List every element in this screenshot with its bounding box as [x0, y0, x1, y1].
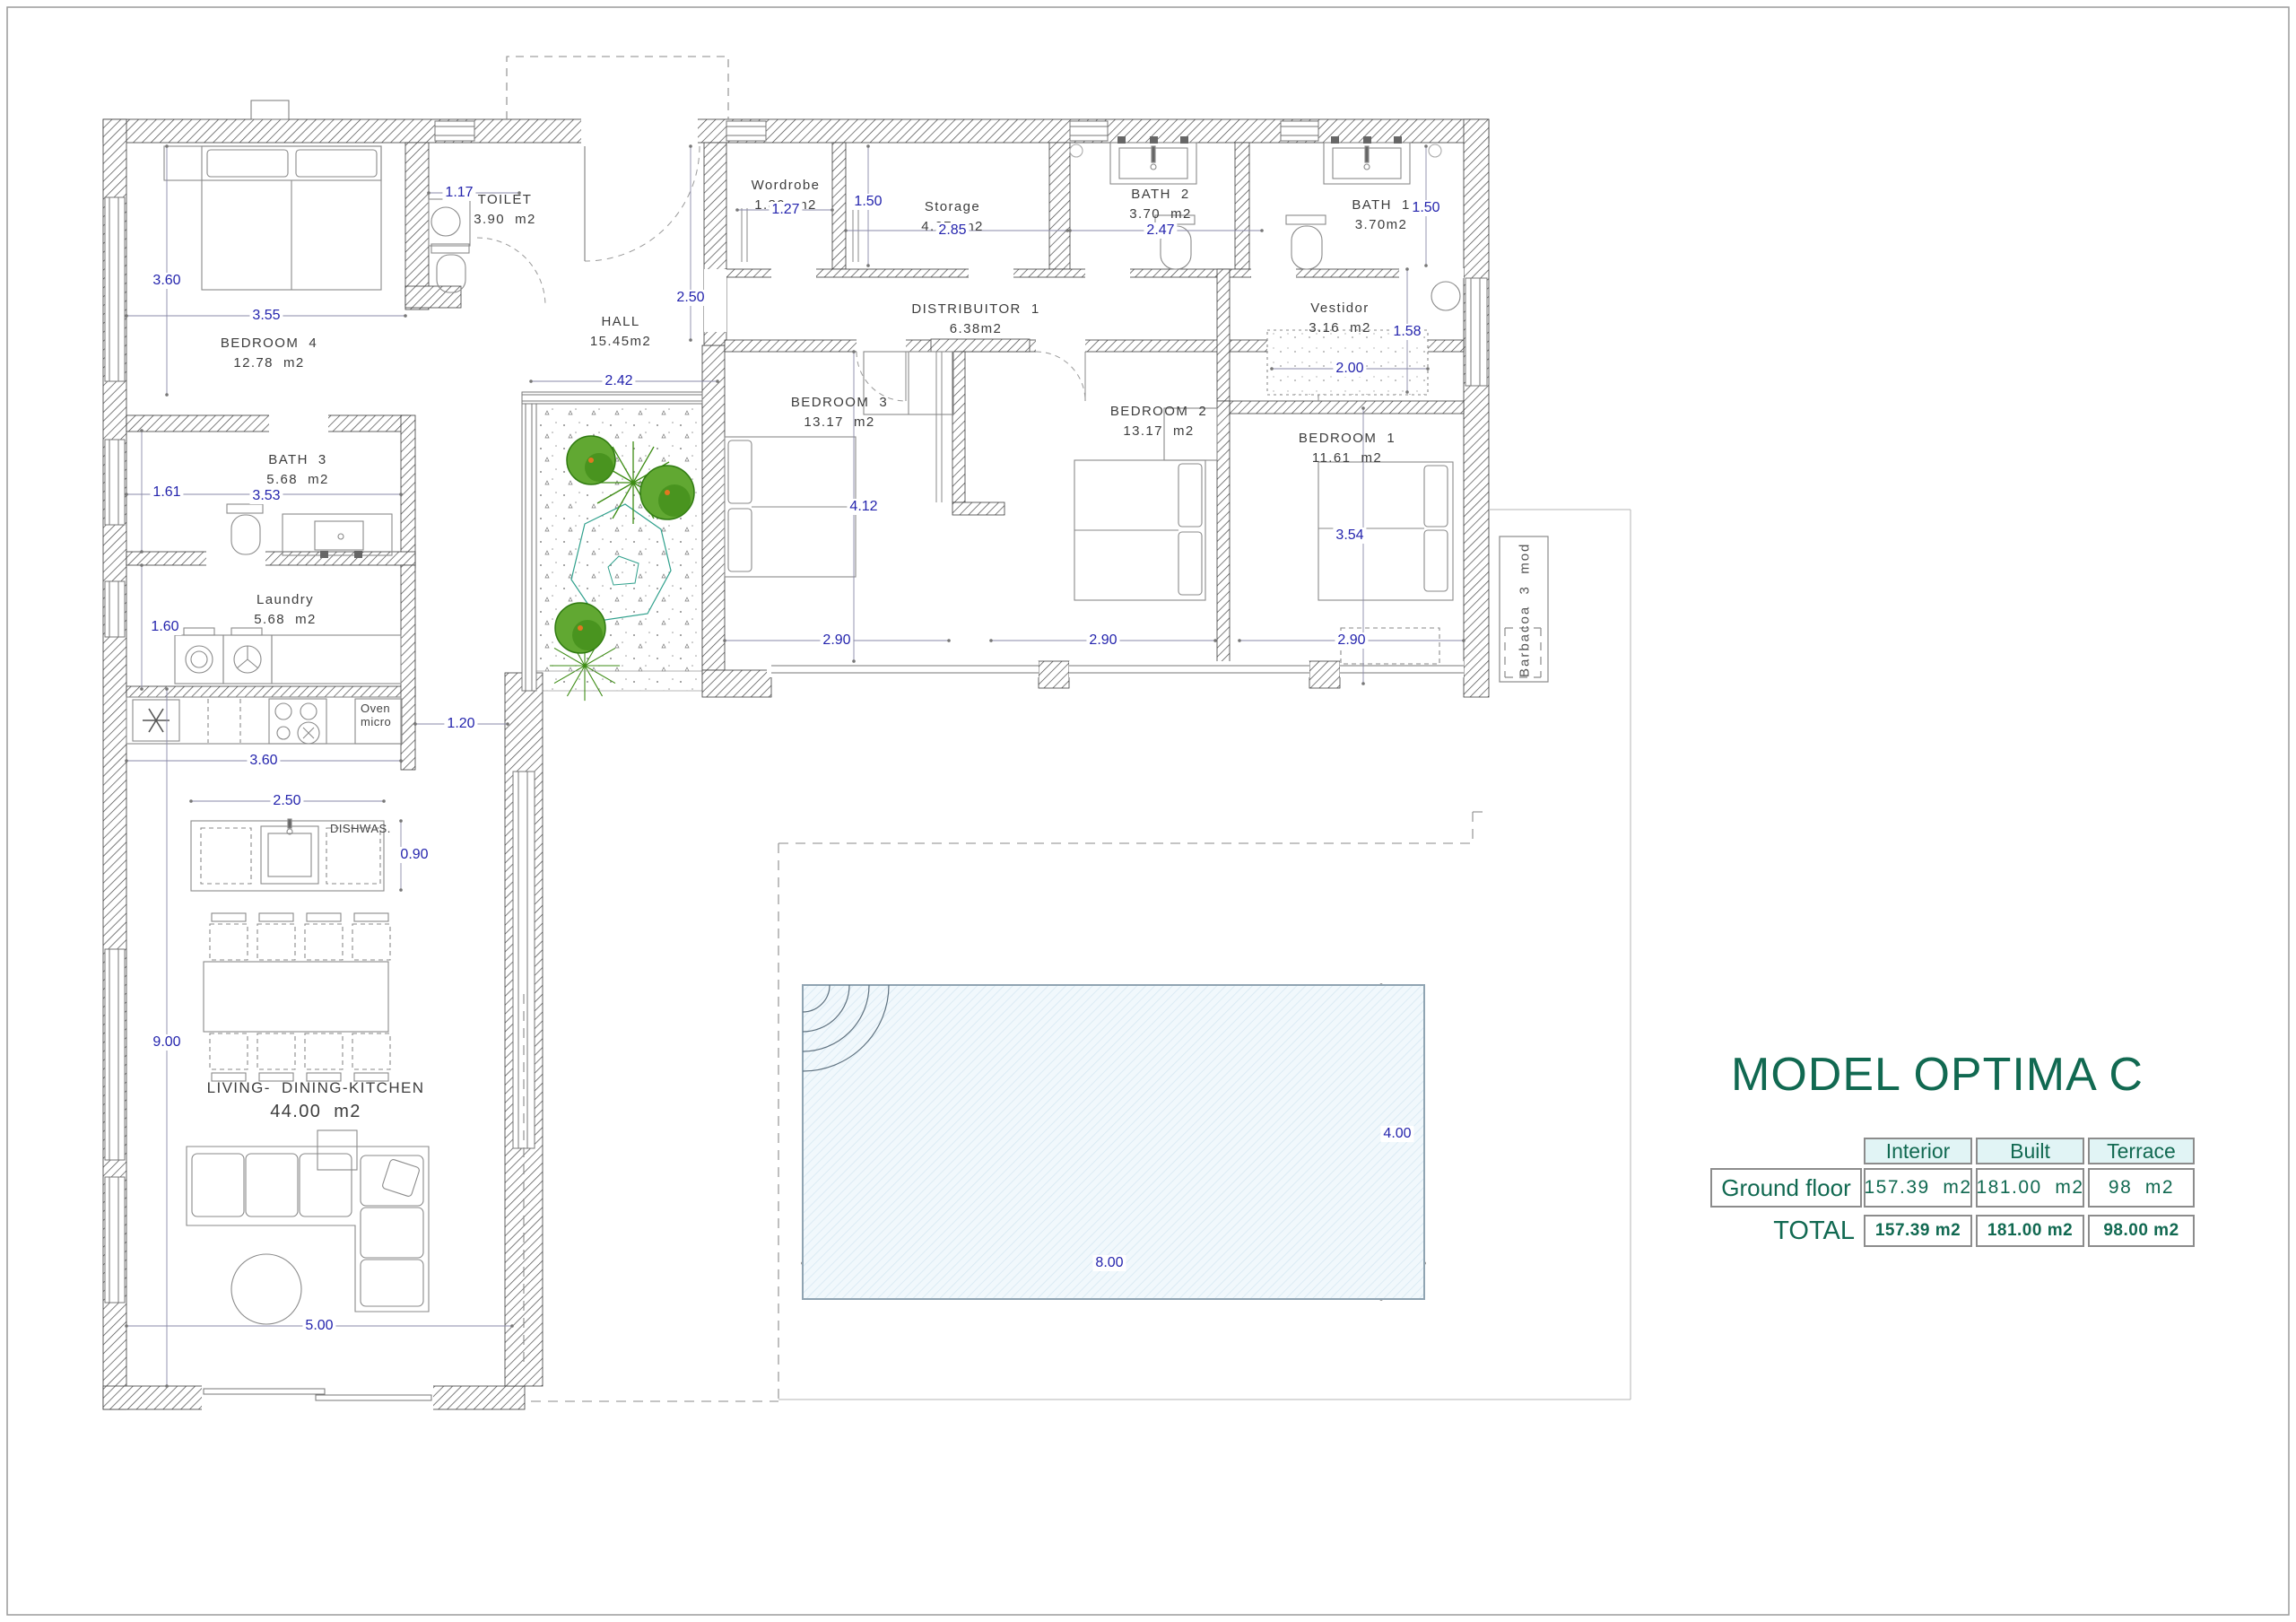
dimension-label: 2.90	[820, 632, 853, 649]
window-left-bedroom4	[105, 197, 125, 381]
dimension-label: 1.17	[442, 185, 475, 201]
distributor-doors	[936, 352, 942, 502]
dimension-label: 9.00	[150, 1034, 183, 1051]
dimension-label: 4.12	[847, 499, 880, 515]
room-label-bath-1: BATH 13.70m2	[1352, 196, 1410, 235]
wardrobe-door	[742, 208, 747, 262]
patio-garden	[536, 404, 702, 701]
vent-box-icon	[251, 100, 289, 119]
toilet-room-fixtures	[429, 199, 470, 292]
dimension-label: 2.50	[674, 290, 707, 306]
dimension-label: 2.85	[935, 222, 969, 239]
dimension-label: 1.20	[444, 716, 477, 732]
bed-double-icon	[164, 146, 381, 290]
window-top-wardrobe	[726, 121, 766, 141]
barbecue-label: Barbacoa 3 mod	[1503, 540, 1546, 680]
sofa-icon	[187, 1130, 429, 1312]
laundry-appliances	[175, 628, 401, 684]
dimension-label: 2.47	[1144, 222, 1177, 239]
bush-icon	[555, 603, 605, 653]
table-header-interior: Interior	[1864, 1138, 1972, 1164]
model-title: MODEL OPTIMA C	[1731, 1048, 2126, 1102]
ground-floor-interior-value: 157.39 m2	[1864, 1168, 1972, 1208]
round-table-icon	[231, 1254, 301, 1324]
bed-double-icon	[725, 352, 953, 577]
island-sink-icon	[261, 826, 318, 884]
table-header-terrace: Terrace	[2088, 1138, 2195, 1164]
wc-icon	[1291, 226, 1322, 269]
table-header-built: Built	[1976, 1138, 2084, 1164]
room-label-hall: HALL15.45m2	[590, 312, 651, 352]
washer-icon	[186, 646, 213, 673]
entrance-door-swing	[585, 146, 700, 261]
room-label-bedroom-3: BEDROOM 313.17 m2	[791, 393, 888, 432]
total-terrace-value: 98.00 m2	[2088, 1215, 2195, 1247]
table-row-label-ground-floor: Ground floor	[1710, 1168, 1862, 1208]
bush-icon	[567, 436, 615, 484]
window-top-toilet	[435, 121, 474, 141]
fridge-snowflake-icon	[143, 709, 170, 732]
porch-outline	[507, 57, 728, 119]
room-label-toilet: TOILET3.90 m2	[474, 190, 536, 230]
dimension-label: 3.60	[150, 273, 183, 289]
room-label-laundry: Laundry5.68 m2	[254, 590, 317, 630]
window-left-laundry	[105, 581, 125, 637]
window-left-bath3	[105, 440, 125, 525]
dining-table-icon	[204, 913, 390, 1081]
dimension-label: 3.53	[249, 488, 283, 504]
room-label-living-dining-kitchen: LIVING- DINING-KITCHEN44.00 m2	[207, 1077, 425, 1123]
dimension-label: 1.60	[148, 619, 181, 635]
dimension-label: 4.00	[1380, 1126, 1413, 1142]
side-table-icon	[317, 1130, 357, 1170]
dimension-label: 1.58	[1390, 324, 1423, 340]
dimension-label: 2.50	[270, 793, 303, 809]
room-label-bedroom-4: BEDROOM 412.78 m2	[221, 334, 317, 373]
room-label-bath-2: BATH 23.70 m2	[1129, 185, 1192, 224]
dimension-label: 3.54	[1333, 528, 1366, 544]
total-interior-value: 157.39 m2	[1864, 1215, 1972, 1247]
dimension-label: 2.90	[1335, 632, 1368, 649]
washbasin-icon	[1431, 282, 1460, 310]
floor-plan-drawing	[0, 0, 2296, 1622]
ground-floor-built-value: 181.00 m2	[1976, 1168, 2084, 1208]
pool	[803, 985, 1424, 1299]
washbasin-icon	[431, 207, 460, 236]
dimension-label: 1.50	[851, 194, 884, 210]
window-top-bath1	[1281, 121, 1318, 141]
dimension-label: 2.00	[1333, 361, 1366, 377]
dimension-label: 5.00	[302, 1318, 335, 1334]
sheet-border	[7, 7, 2289, 1615]
oven-micro-label: Oven micro	[361, 702, 391, 728]
dimension-label: 3.55	[249, 308, 283, 324]
dimension-label: 2.90	[1086, 632, 1119, 649]
room-label-distributor: DISTRIBUITOR 16.38m2	[911, 300, 1039, 339]
dimension-label: 0.90	[397, 847, 430, 863]
floor-plan-sheet: { "sheet": { "title": "MODEL OPTIMA C" }…	[0, 0, 2296, 1622]
room-label-bath-3: BATH 35.68 m2	[266, 450, 329, 490]
bedroom2-door-swing	[1036, 352, 1085, 401]
bath3-fixtures	[227, 504, 392, 558]
window-left-living-a	[105, 949, 125, 1160]
window-living-east	[513, 772, 535, 1148]
dishwasher-label: DISHWAS.	[330, 822, 391, 835]
dimension-label: 1.61	[150, 484, 183, 501]
total-built-value: 181.00 m2	[1976, 1215, 2084, 1247]
ground-floor-terrace-value: 98 m2	[2088, 1168, 2195, 1208]
window-left-living-b	[105, 1177, 125, 1303]
wc-icon	[231, 515, 260, 554]
room-label-vestidor: Vestidor3.16 m2	[1309, 299, 1371, 338]
room-label-bedroom-2: BEDROOM 213.17 m2	[1110, 402, 1207, 441]
dimension-label: 2.42	[602, 373, 635, 389]
dimension-label: 8.00	[1092, 1255, 1126, 1271]
dimension-label: 1.50	[1409, 200, 1442, 216]
dimension-label: 1.27	[769, 202, 802, 218]
dishwasher-icon	[326, 828, 380, 884]
patio-glass-north	[522, 392, 702, 404]
window-right-vestidor	[1465, 278, 1487, 386]
patio-glass-west	[522, 395, 536, 691]
table-row-label-total: TOTAL	[1710, 1215, 1862, 1247]
storage-door	[853, 208, 858, 262]
window-top-bath2	[1070, 121, 1108, 141]
room-label-bedroom-1: BEDROOM 111.61 m2	[1299, 429, 1396, 468]
bush-icon	[640, 466, 694, 519]
toilet-door-swing	[477, 238, 545, 306]
dimension-label: 3.60	[247, 753, 280, 769]
